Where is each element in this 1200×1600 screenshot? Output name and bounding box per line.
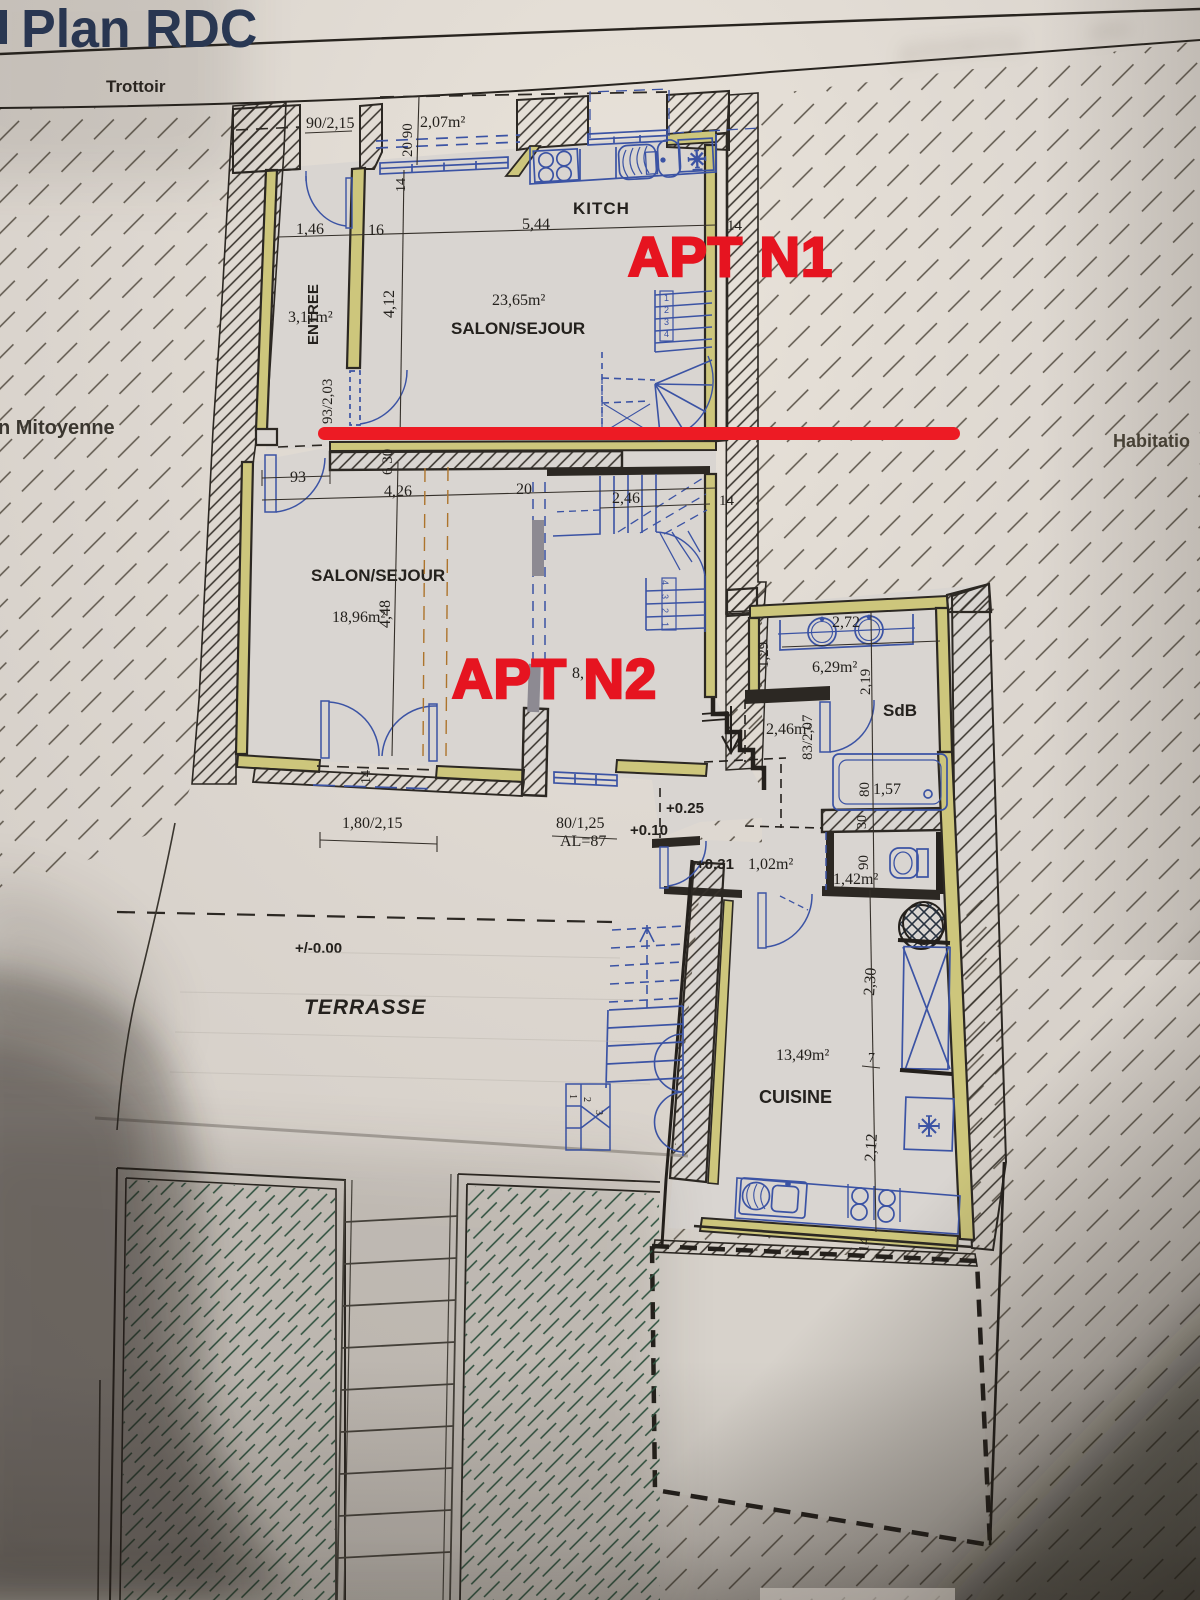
svg-text:23,65m²: 23,65m² [492,292,545,309]
svg-text:SALON/SEJOUR: SALON/SEJOUR [311,566,445,585]
svg-text:93/2,03: 93/2,03 [320,379,336,424]
svg-text:20 90: 20 90 [400,123,416,157]
svg-text:APT N2: APT N2 [452,647,657,710]
svg-text:6 30: 6 30 [380,449,396,475]
svg-text:+/-0.00: +/-0.00 [295,940,342,957]
svg-text:4,48: 4,48 [377,600,394,628]
svg-text:3: 3 [664,317,669,327]
svg-text:3,11m²: 3,11m² [288,309,333,326]
svg-text:83/2,07: 83/2,07 [800,714,816,760]
svg-text:2: 2 [660,608,670,613]
svg-text:6,29m²: 6,29m² [812,659,857,676]
svg-text:2: 2 [664,305,669,315]
svg-text:2,72: 2,72 [832,614,860,631]
svg-text:4: 4 [660,580,670,585]
svg-text:14: 14 [359,770,374,784]
svg-text:n Mitoyenne: n Mitoyenne [0,417,115,439]
svg-text:4: 4 [664,329,669,339]
svg-text:1,29: 1,29 [756,642,772,668]
svg-text:APT N1: APT N1 [628,225,833,288]
svg-text:5,44: 5,44 [522,216,550,233]
svg-text:20: 20 [516,481,532,498]
svg-text:SdB: SdB [883,701,917,720]
svg-text:1,46: 1,46 [296,221,324,238]
svg-text:2,46: 2,46 [612,490,640,507]
svg-text:TERRASSE: TERRASSE [304,996,426,1019]
svg-text:1: 1 [660,622,670,627]
svg-text:SALON/SEJOUR: SALON/SEJOUR [451,319,585,338]
svg-text:2,07m²: 2,07m² [420,114,465,131]
svg-text:4,12: 4,12 [381,290,398,318]
svg-text:16: 16 [368,222,384,239]
svg-text:1,80/2,15: 1,80/2,15 [342,815,402,832]
svg-text:3: 3 [660,594,670,599]
svg-text:14: 14 [719,493,735,509]
svg-text:KITCH: KITCH [573,199,630,218]
svg-text:14: 14 [394,178,409,192]
svg-text:1: 1 [664,293,669,303]
svg-text:90/2,15: 90/2,15 [306,115,354,132]
